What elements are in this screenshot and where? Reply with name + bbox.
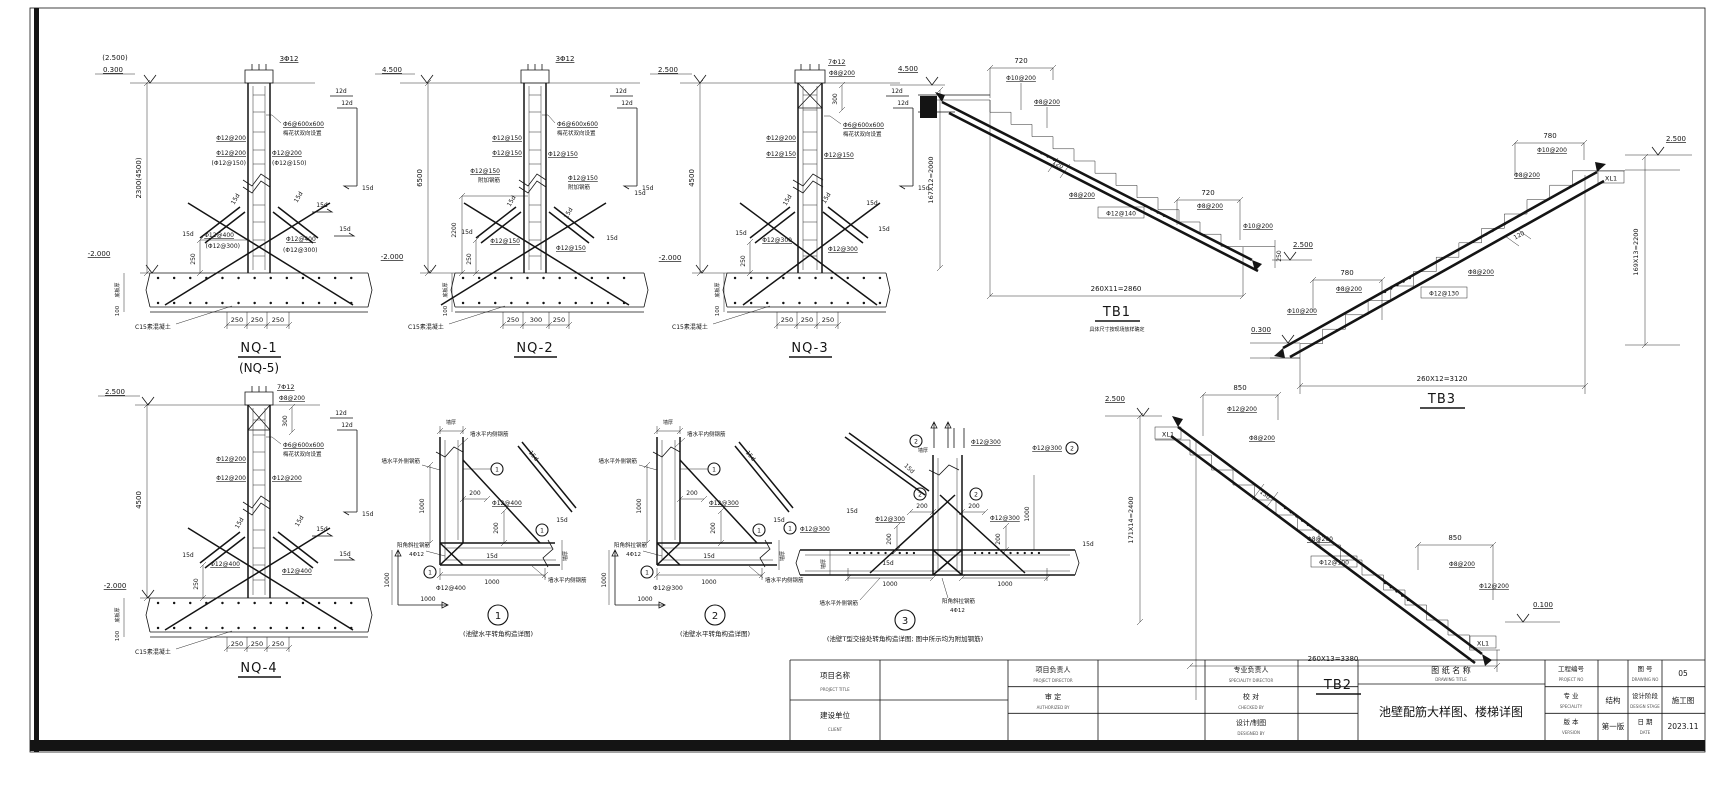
dim-label: 250: [231, 640, 243, 648]
callout-number: 1: [495, 467, 499, 474]
tb-project-en: PROJECT TITLE: [820, 687, 850, 692]
rebar-note: 阳角斜拉钢筋: [942, 597, 976, 605]
dim-label: 260X11=2860: [1091, 285, 1142, 293]
rebar-label: (Φ12@150): [212, 160, 247, 167]
material-label: C15素混凝土: [408, 323, 444, 331]
tb-pm-label: 项目负责人: [1036, 665, 1071, 674]
dim-label: 墙厚: [663, 419, 673, 426]
tb-lead-en: SPECIALITY DIRECTOR: [1229, 678, 1274, 683]
section-subtitle: (NQ-5): [239, 361, 279, 375]
tb-figno-value: 05: [1678, 669, 1688, 678]
rebar-label: Φ12@400: [204, 232, 234, 239]
dim-label: 250: [231, 316, 243, 324]
detail-caption: (池壁水平转角构造详图): [680, 629, 750, 638]
dim-label: 200: [686, 490, 698, 497]
note-15d: 15d: [556, 517, 568, 524]
dim-label: 2300(4500): [135, 157, 143, 198]
tb-spec-value: 结构: [1606, 695, 1622, 705]
dim-label: 250: [801, 316, 813, 324]
tb-ver-value: 第一版: [1602, 721, 1625, 731]
note-15d: 15d: [866, 200, 878, 207]
tb-figno-en: DRAWING NO: [1632, 677, 1659, 682]
dim-label: 1000: [636, 498, 643, 513]
level-label: 2.500: [1293, 241, 1313, 249]
note-15d: 15d: [316, 202, 328, 209]
rebar-label: Φ8@200: [1307, 536, 1333, 543]
rebar-label: Φ12@200: [766, 135, 796, 142]
dim-label: 169X13=2200: [1632, 228, 1640, 275]
dim-label: 墙厚: [820, 559, 827, 569]
rebar-label: Φ12@200: [1227, 406, 1257, 413]
callout-number: 1: [788, 526, 792, 533]
level-label: 4.500: [898, 65, 918, 73]
dim-label: 底板厚: [714, 282, 721, 297]
dim-label: 850: [1233, 384, 1246, 392]
level-label: -2.000: [659, 254, 682, 262]
dim-label: 300: [282, 415, 289, 427]
dim-label: 250: [251, 640, 263, 648]
dim-label: 1000: [419, 498, 426, 513]
rebar-label: Φ8@200: [1069, 192, 1095, 199]
material-label: C15素混凝土: [135, 323, 171, 331]
note-15d: 15d: [882, 560, 894, 567]
level-label: 2.500: [1105, 395, 1125, 403]
dim-label: 1000: [384, 572, 391, 587]
dim-label: 2200: [451, 222, 458, 237]
rebar-label: Φ10@200: [1287, 308, 1317, 315]
dim-label: 墙厚: [446, 419, 456, 426]
rebar-label: 4Φ12: [626, 552, 641, 558]
note-15d: 15d: [606, 235, 618, 242]
section-nq2: 4.500 3Φ12 6500 Φ6@600x600 梅花状双向设置 Φ12@1…: [375, 55, 654, 357]
note-12d: 12d: [891, 88, 903, 95]
stair-tb2: 2.500 XL1 171X14=2400 850 Φ12@200 Φ8@200…: [1105, 384, 1560, 700]
note-15d: 15d: [486, 553, 498, 560]
rebar-label: Φ12@400: [210, 561, 240, 568]
rebar-label: (Φ12@300): [206, 243, 241, 250]
rebar-label: Φ12@400: [492, 500, 522, 507]
dim-label: 1000: [701, 579, 716, 586]
dim-label: 250: [251, 316, 263, 324]
note-15d: 15d: [339, 226, 351, 233]
dim-label: 200: [710, 522, 717, 534]
rebar-label: Φ12@300: [800, 526, 830, 533]
dim-label: 250: [781, 316, 793, 324]
tb-drawing-title: 池壁配筋大样图、楼梯详图: [1379, 704, 1523, 719]
dim-label: 1000: [997, 581, 1012, 588]
tb-stage-value: 施工图: [1672, 695, 1695, 705]
rebar-label: Φ12@150: [568, 175, 598, 182]
rebar-label: Φ12@200: [216, 150, 246, 157]
note-15d: 15d: [642, 185, 654, 192]
rebar-label: Φ8@200: [1514, 172, 1540, 179]
tb-check-label: 校 对: [1243, 692, 1259, 701]
dim-label: 100: [715, 305, 721, 316]
dim-label: 250: [193, 578, 200, 590]
detail-caption: (池壁T型交接处转角构造详图; 图中所示均为附加钢筋): [827, 634, 983, 643]
rebar-note: 墙水平内侧钢筋: [765, 576, 804, 584]
rebar-label: Φ12@150: [548, 151, 578, 158]
stair-note: 具体尺寸按现场放样确定: [1089, 326, 1144, 333]
rebar-label: Φ10@200: [1243, 223, 1273, 230]
dim-label: 850: [1448, 534, 1461, 542]
note-15d: 15d: [506, 194, 518, 208]
callout-number: 2: [1070, 446, 1074, 453]
dim-label: 780: [1543, 132, 1556, 140]
rebar-note: 阳角斜拉钢筋: [397, 541, 431, 549]
dim-label: 墙厚: [918, 447, 928, 454]
note-15d: 15d: [182, 231, 194, 238]
dim-label: 250: [466, 253, 473, 265]
note-12d: 12d: [621, 100, 633, 107]
dim-label: 250: [822, 316, 834, 324]
rebar-label: Φ6@600x600: [843, 122, 884, 129]
tb-design-label: 设计/制图: [1236, 718, 1266, 727]
rebar-label: 4Φ12: [409, 552, 424, 558]
note-15d: 15d: [362, 511, 374, 518]
dim-label: 300: [832, 93, 839, 105]
rebar-note: 墙水平外侧钢筋: [819, 599, 858, 607]
rebar-note: 墙水平外侧钢筋: [381, 457, 420, 465]
rebar-label: Φ12@200: [272, 150, 302, 157]
section-nq1: (2.500) 0.300 3Φ12 2300(4500) Φ6@600x600…: [88, 54, 374, 375]
material-label: C15素混凝土: [672, 323, 708, 331]
section-title: NQ-1: [240, 341, 277, 356]
stair-title: TB2: [1323, 678, 1352, 693]
tb-design-en: DESIGNED BY: [1237, 731, 1265, 736]
dim-label: 墙厚: [562, 551, 569, 561]
dim-label: 250: [740, 255, 747, 267]
note-15d: 15d: [735, 230, 747, 237]
rebar-label: Φ12@200: [216, 135, 246, 142]
section-nq3: 2.500 7Φ12 Φ8@200 300 4500 Φ6@600x600 梅花…: [650, 58, 930, 357]
callout-number: 2: [918, 492, 922, 499]
dim-label: 130: [1258, 489, 1272, 502]
dim-label: 260X13=3380: [1308, 655, 1359, 663]
detail-2: 墙厚 墙水平内侧钢筋 墙水平外侧钢筋 1 15d 15d 1000 200 Φ1…: [598, 419, 804, 638]
detail-number: 1: [495, 611, 501, 622]
note-15d: 15d: [846, 508, 858, 515]
callout-number: 1: [428, 570, 432, 577]
tb-auth-label: 审 定: [1045, 692, 1061, 701]
rebar-note: 附加钢筋: [478, 176, 501, 184]
section-nq4: 2.500 7Φ12 Φ8@200 300 4500 Φ6@600x600 梅花…: [98, 383, 374, 677]
note-15d: 15d: [703, 553, 715, 560]
rebar-note: 附加钢筋: [568, 183, 591, 191]
rebar-label: Φ12@400: [282, 568, 312, 575]
callout-number: 1: [540, 528, 544, 535]
level-label: -2.000: [104, 582, 127, 590]
dim-label: 4500: [135, 491, 143, 509]
level-label: 2.500: [105, 388, 125, 396]
rebar-label: 3Φ12: [556, 55, 575, 63]
rebar-label: Φ12@150: [824, 152, 854, 159]
rebar-label: Φ12@300: [709, 500, 739, 507]
title-block: 项目名称 PROJECT TITLE 建设单位 CLIENT 项目负责人 PRO…: [790, 660, 1705, 740]
dim-label: 1000: [601, 572, 608, 587]
rebar-label: Φ12@100: [1319, 560, 1349, 567]
level-label: -2.000: [381, 253, 404, 261]
dim-label: 底板厚: [442, 282, 449, 297]
dim-label: 250: [507, 316, 519, 324]
dim-label: 100: [115, 305, 121, 316]
note-15d: 15d: [461, 229, 473, 236]
rebar-label: Φ8@200: [829, 70, 855, 77]
rebar-label: Φ12@300: [875, 516, 905, 523]
dim-label: 4500: [688, 169, 696, 187]
tb-client-en: CLIENT: [828, 727, 843, 732]
dim-label: 墙厚: [779, 551, 786, 561]
dim-label: 200: [995, 533, 1002, 545]
dim-label: 167X12=2000: [927, 156, 935, 203]
rebar-label: Φ12@150: [492, 135, 522, 142]
dim-label: 200: [916, 503, 928, 510]
tb-check-en: CHECKED BY: [1238, 705, 1264, 710]
note-12d: 12d: [335, 88, 347, 95]
rebar-note: 墙水平内侧钢筋: [470, 430, 509, 438]
stair-tb1: 4.500 167X12=2000 720 Φ10@200 Φ8@200 120…: [890, 57, 1313, 333]
level-label: (2.500): [102, 54, 128, 62]
rebar-note: 墙水平内侧钢筋: [548, 576, 587, 584]
tb-stage-label: 设计阶段: [1632, 691, 1659, 700]
callout-number: 1: [645, 570, 649, 577]
callout-number: 1: [757, 528, 761, 535]
tb-spec-label: 专 业: [1563, 691, 1579, 700]
tb-client-label: 建设单位: [820, 710, 850, 720]
tb-auth-en: AUTHORIZED BY: [1037, 705, 1070, 710]
tb-pm-en: PROJECT DIRECTOR: [1033, 678, 1073, 683]
section-title: NQ-2: [516, 341, 553, 356]
level-label: -2.000: [88, 250, 111, 258]
note-15d: 15d: [563, 206, 575, 220]
note-12d: 12d: [615, 88, 627, 95]
rebar-label: Φ12@130: [1429, 291, 1459, 298]
note-12d: 12d: [341, 100, 353, 107]
tb-date-label: 日 期: [1637, 718, 1653, 726]
rebar-label: Φ6@600x600: [557, 121, 598, 128]
rebar-label: 7Φ12: [828, 58, 846, 66]
rebar-label: Φ12@150: [490, 238, 520, 245]
tb-title-en: DRAWING TITLE: [1435, 677, 1467, 682]
tb-figno-label: 图 号: [1637, 665, 1653, 673]
tb-projno-label: 工程编号: [1558, 664, 1585, 673]
tb-title-label: 图 纸 名 称: [1431, 665, 1471, 675]
detail-number: 3: [902, 616, 908, 627]
rebar-label: Φ12@300: [990, 515, 1020, 522]
rebar-label: Φ12@200: [216, 475, 246, 482]
drawing-sheet: (2.500) 0.300 3Φ12 2300(4500) Φ6@600x600…: [0, 0, 1732, 810]
dim-label: 1000: [420, 596, 435, 603]
detail-1: 墙厚 墙水平内侧钢筋 墙水平外侧钢筋 1 15d 15d 1000 200 Φ1…: [381, 419, 587, 638]
callout-number: 2: [974, 492, 978, 499]
section-title: NQ-3: [791, 341, 828, 356]
level-label: 0.100: [1533, 601, 1553, 609]
level-label: 2.500: [658, 66, 678, 74]
note-15d: 15d: [230, 192, 242, 206]
dim-label: 100: [115, 630, 121, 641]
detail-3: 墙厚 2 Φ12@300 Φ12@300 2 2 2 200 200 Φ12@3…: [784, 422, 1094, 643]
tb-lead-label: 专业负责人: [1234, 665, 1269, 674]
rebar-label: Φ12@150: [492, 150, 522, 157]
note-15d: 15d: [182, 552, 194, 559]
tb-date-en: DATE: [1640, 730, 1651, 735]
dim-label: 底板厚: [114, 607, 121, 622]
rebar-label: Φ12@400: [436, 585, 466, 592]
stair-title: TB3: [1427, 392, 1456, 407]
note-15d: 15d: [773, 517, 785, 524]
rebar-label: Φ12@300: [653, 585, 683, 592]
tb-spec-en: SPECIALITY: [1560, 704, 1583, 709]
dim-label: 260X12=3120: [1417, 375, 1468, 383]
tb-ver-en: VERSION: [1562, 730, 1580, 735]
detail-number: 2: [712, 611, 718, 622]
note-15d: 15d: [1082, 541, 1094, 548]
dim-label: 200: [886, 533, 893, 545]
dim-label: 250: [553, 316, 565, 324]
rebar-label: Φ12@150: [766, 151, 796, 158]
dim-label: 1000: [882, 581, 897, 588]
rebar-label: Φ12@300: [762, 237, 792, 244]
rebar-label: Φ12@200: [272, 475, 302, 482]
rebar-label: Φ12@150: [556, 245, 586, 252]
callout-number: 1: [712, 467, 716, 474]
dim-label: 780: [1340, 269, 1353, 277]
dim-label: 200: [968, 503, 980, 510]
rebar-label: (Φ12@150): [272, 160, 307, 167]
stair-title: TB1: [1102, 305, 1131, 320]
rebar-label: Φ12@150: [470, 168, 500, 175]
rebar-label: Φ12@300: [828, 246, 858, 253]
member-label: XL1: [1605, 175, 1617, 183]
callout-number: 2: [914, 439, 918, 446]
note-12d: 12d: [341, 422, 353, 429]
rebar-label: Φ10@200: [1006, 75, 1036, 82]
material-label: C15素混凝土: [135, 648, 171, 656]
tb-ver-label: 版 本: [1563, 717, 1579, 726]
dim-label: 200: [493, 522, 500, 534]
dim-label: 1000: [1024, 506, 1031, 521]
dim-label: 6500: [416, 169, 424, 187]
rebar-label: Φ12@200: [1479, 583, 1509, 590]
detail-caption: (池壁水平转角构造详图): [463, 629, 533, 638]
tb-date-value: 2023.11: [1667, 722, 1698, 731]
rebar-label: Φ8@200: [1449, 561, 1475, 568]
rebar-label: Φ12@200: [216, 456, 246, 463]
rebar-label: Φ8@200: [1468, 269, 1494, 276]
rebar-label: Φ12@300: [971, 439, 1001, 446]
note-15d: 15d: [878, 226, 890, 233]
rebar-note: 墙水平外侧钢筋: [598, 457, 637, 465]
rebar-note: 阳角斜拉钢筋: [614, 541, 648, 549]
rebar-note: 梅花状双向设置: [283, 450, 322, 458]
rebar-label: Φ8@200: [1249, 435, 1275, 442]
rebar-label: Φ12@400: [286, 236, 316, 243]
dim-label: 720: [1201, 189, 1214, 197]
note-15d: 15d: [362, 185, 374, 192]
rebar-label: Φ8@200: [279, 395, 305, 402]
dim-label: 100: [443, 305, 449, 316]
dim-label: 720: [1014, 57, 1027, 65]
section-title: NQ-4: [240, 661, 277, 676]
note-15d: 15d: [316, 526, 328, 533]
dim-label: 1000: [637, 596, 652, 603]
cad-canvas: (2.500) 0.300 3Φ12 2300(4500) Φ6@600x600…: [0, 0, 1732, 810]
rebar-note: 梅花状双向设置: [843, 130, 882, 138]
rebar-label: 4Φ12: [950, 608, 965, 614]
rebar-label: 7Φ12: [277, 383, 295, 391]
note-15d: 15d: [782, 193, 794, 207]
rebar-label: Φ8@200: [1034, 99, 1060, 106]
rebar-note: 墙水平内侧钢筋: [687, 430, 726, 438]
member-label: XL1: [1477, 640, 1489, 648]
note-12d: 12d: [335, 410, 347, 417]
rebar-label: (Φ12@300): [283, 247, 318, 254]
dim-label: 250: [272, 316, 284, 324]
level-label: 4.500: [382, 66, 402, 74]
rebar-note: 梅花状双向设置: [557, 129, 596, 137]
dim-label: 300: [530, 316, 542, 324]
level-label: 0.300: [1251, 326, 1271, 334]
rebar-label: Φ6@600x600: [283, 442, 324, 449]
rebar-label: Φ10@200: [1537, 147, 1567, 154]
level-label: 0.300: [103, 66, 123, 74]
note-15d: 15d: [234, 516, 246, 530]
note-15d: 15d: [294, 514, 306, 528]
tb-project-label: 项目名称: [820, 670, 850, 680]
level-label: 2.500: [1666, 135, 1686, 143]
dim-label: 底板厚: [114, 282, 121, 297]
dim-label: 1000: [484, 579, 499, 586]
rebar-note: 梅花状双向设置: [283, 129, 322, 137]
dim-label: 250: [190, 253, 197, 265]
tb-stage-en: DESIGN STAGE: [1630, 704, 1660, 709]
dim-label: 200: [469, 490, 481, 497]
note-12d: 12d: [897, 100, 909, 107]
dim-label: 250: [272, 640, 284, 648]
rebar-label: Φ6@600x600: [283, 121, 324, 128]
note-15d: 15d: [293, 190, 305, 204]
tb-projno-en: PROJECT NO: [1559, 677, 1584, 682]
dim-label: 171X14=2400: [1127, 496, 1135, 543]
rebar-label: Φ8@200: [1197, 203, 1223, 210]
rebar-label: Φ12@140: [1106, 211, 1136, 218]
stair-tb3: 0.300 780 Φ8@200 Φ10@200 Φ12@130 Φ8@200 …: [1250, 132, 1692, 408]
rebar-label: Φ12@300: [1032, 445, 1062, 452]
rebar-label: Φ8@200: [1336, 286, 1362, 293]
rebar-label: 3Φ12: [280, 55, 299, 63]
